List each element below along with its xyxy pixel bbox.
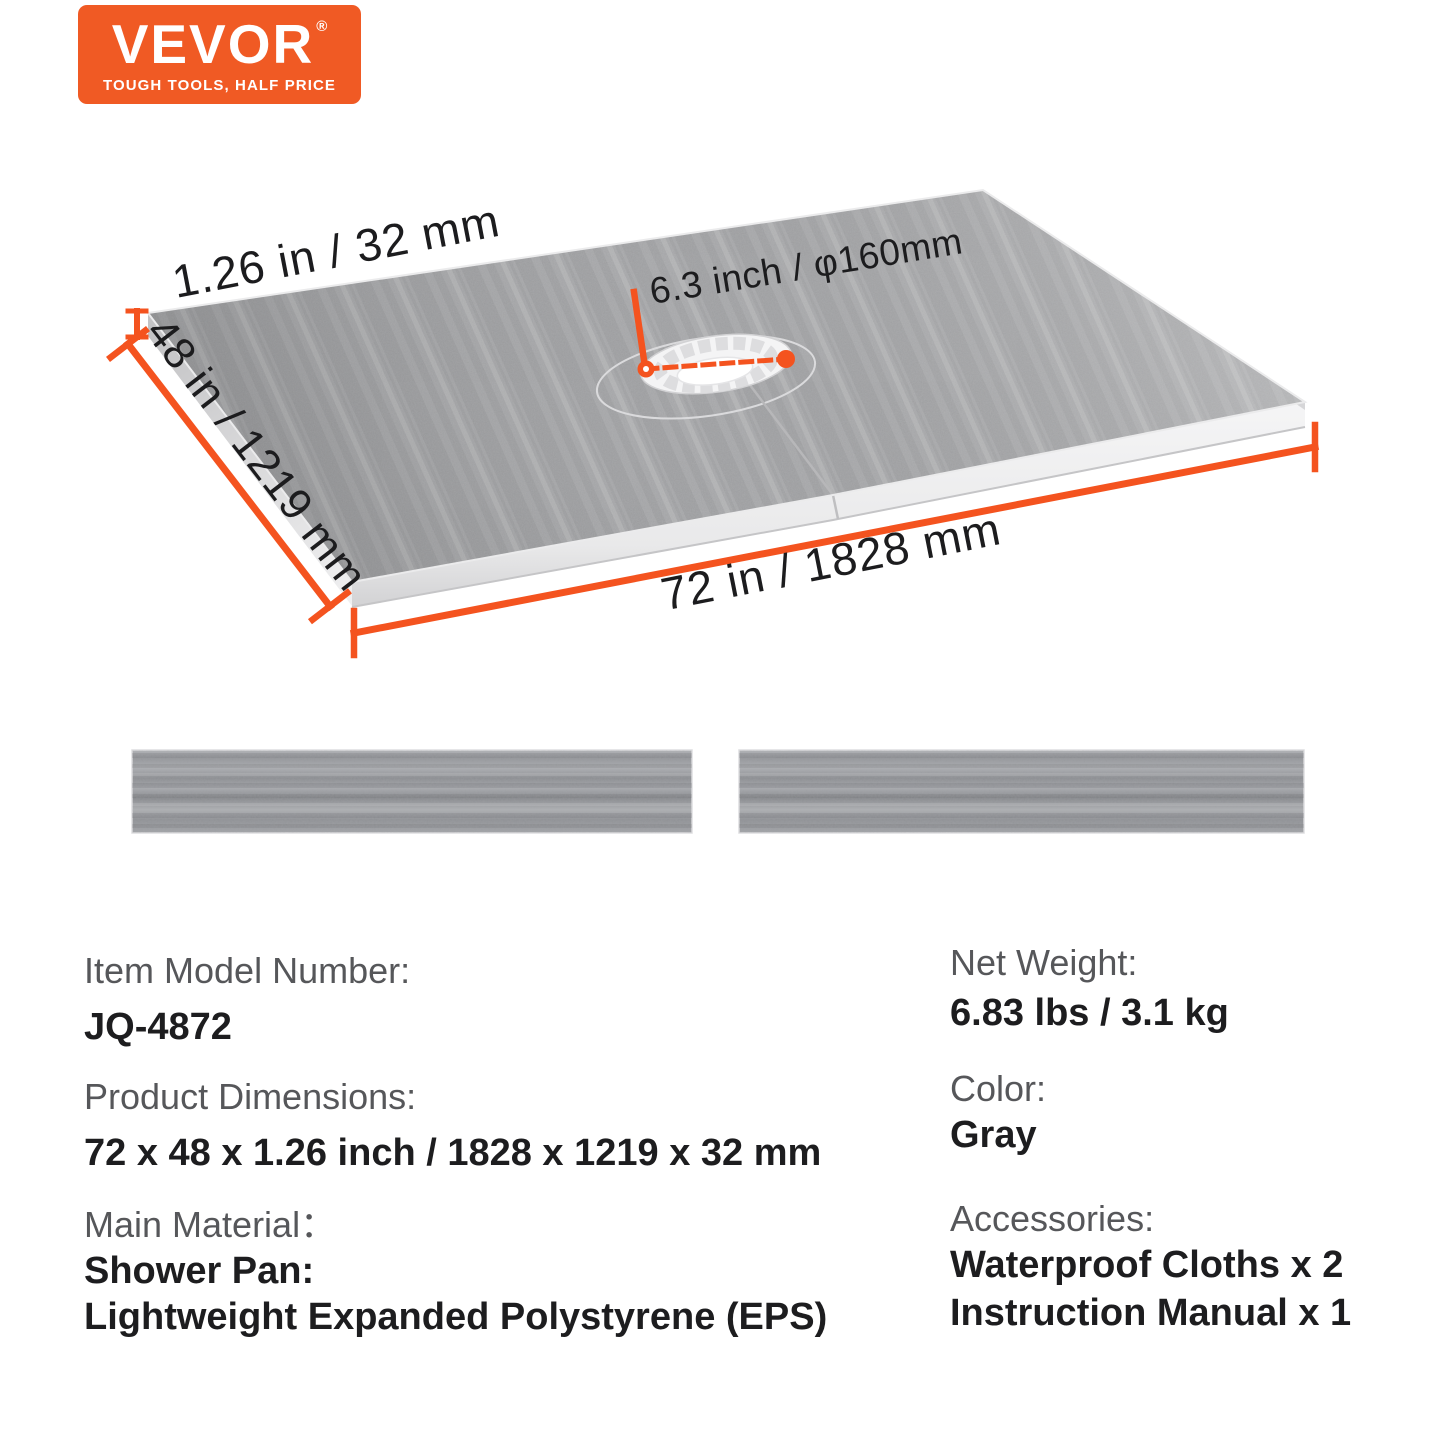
curb-strip-right: [739, 750, 1304, 833]
spec-label-main-material: Main Material：: [84, 1204, 336, 1245]
vevor-logo: VEVOR ® TOUGH TOOLS, HALF PRICE: [78, 5, 361, 104]
spec-value-accessories-1: Waterproof Cloths x 2: [950, 1244, 1343, 1288]
brand-tagline: TOUGH TOOLS, HALF PRICE: [103, 78, 336, 93]
spec-value-product-dimensions: 72 x 48 x 1.26 inch / 1828 x 1219 x 32 m…: [84, 1132, 821, 1176]
spec-label-product-dimensions: Product Dimensions:: [84, 1076, 416, 1117]
spec-label-color: Color:: [950, 1068, 1046, 1109]
registered-mark: ®: [316, 19, 327, 34]
spec-value-color: Gray: [950, 1114, 1037, 1158]
brand-name: VEVOR: [112, 17, 315, 72]
spec-label-item-model-number: Item Model Number:: [84, 950, 410, 991]
spec-value-main-material-2: Lightweight Expanded Polystyrene (EPS): [84, 1296, 827, 1340]
curb-strip-left: [132, 750, 692, 833]
spec-value-item-model-number: JQ-4872: [84, 1006, 232, 1050]
spec-value-main-material-1: Shower Pan:: [84, 1250, 314, 1294]
spec-value-net-weight: 6.83 lbs / 3.1 kg: [950, 992, 1229, 1036]
spec-label-net-weight: Net Weight:: [950, 942, 1137, 983]
spec-label-accessories: Accessories:: [950, 1198, 1154, 1239]
spec-value-accessories-2: Instruction Manual x 1: [950, 1292, 1351, 1336]
